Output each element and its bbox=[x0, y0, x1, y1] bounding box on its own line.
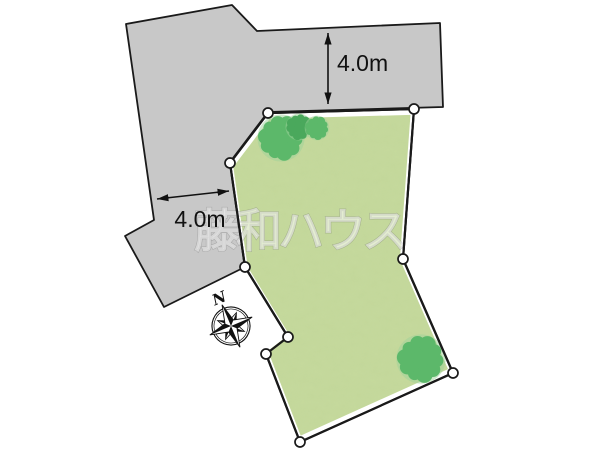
dimension-label-left: 4.0m bbox=[174, 206, 225, 232]
compass-long-points bbox=[201, 296, 261, 356]
vertex-marker bbox=[263, 108, 273, 118]
watermark-text: 藤和ハウス bbox=[194, 204, 405, 258]
vertex-marker bbox=[295, 437, 305, 447]
vertex-marker bbox=[409, 104, 419, 114]
vertex-marker bbox=[448, 368, 458, 378]
compass-rose-icon: N bbox=[195, 281, 262, 356]
dimension-label-top: 4.0m bbox=[337, 50, 388, 76]
site-plan-drawing: 藤和ハウス 4.0m 4.0m N bbox=[0, 0, 600, 450]
vertex-marker bbox=[225, 158, 235, 168]
vertex-marker bbox=[398, 254, 408, 264]
tree-icon bbox=[305, 116, 330, 141]
north-label: N bbox=[209, 287, 231, 310]
vertex-marker bbox=[240, 262, 250, 272]
vertex-marker bbox=[283, 332, 293, 342]
vertex-marker bbox=[261, 349, 271, 359]
site-plan-canvas: 藤和ハウス 4.0m 4.0m N bbox=[0, 0, 600, 450]
